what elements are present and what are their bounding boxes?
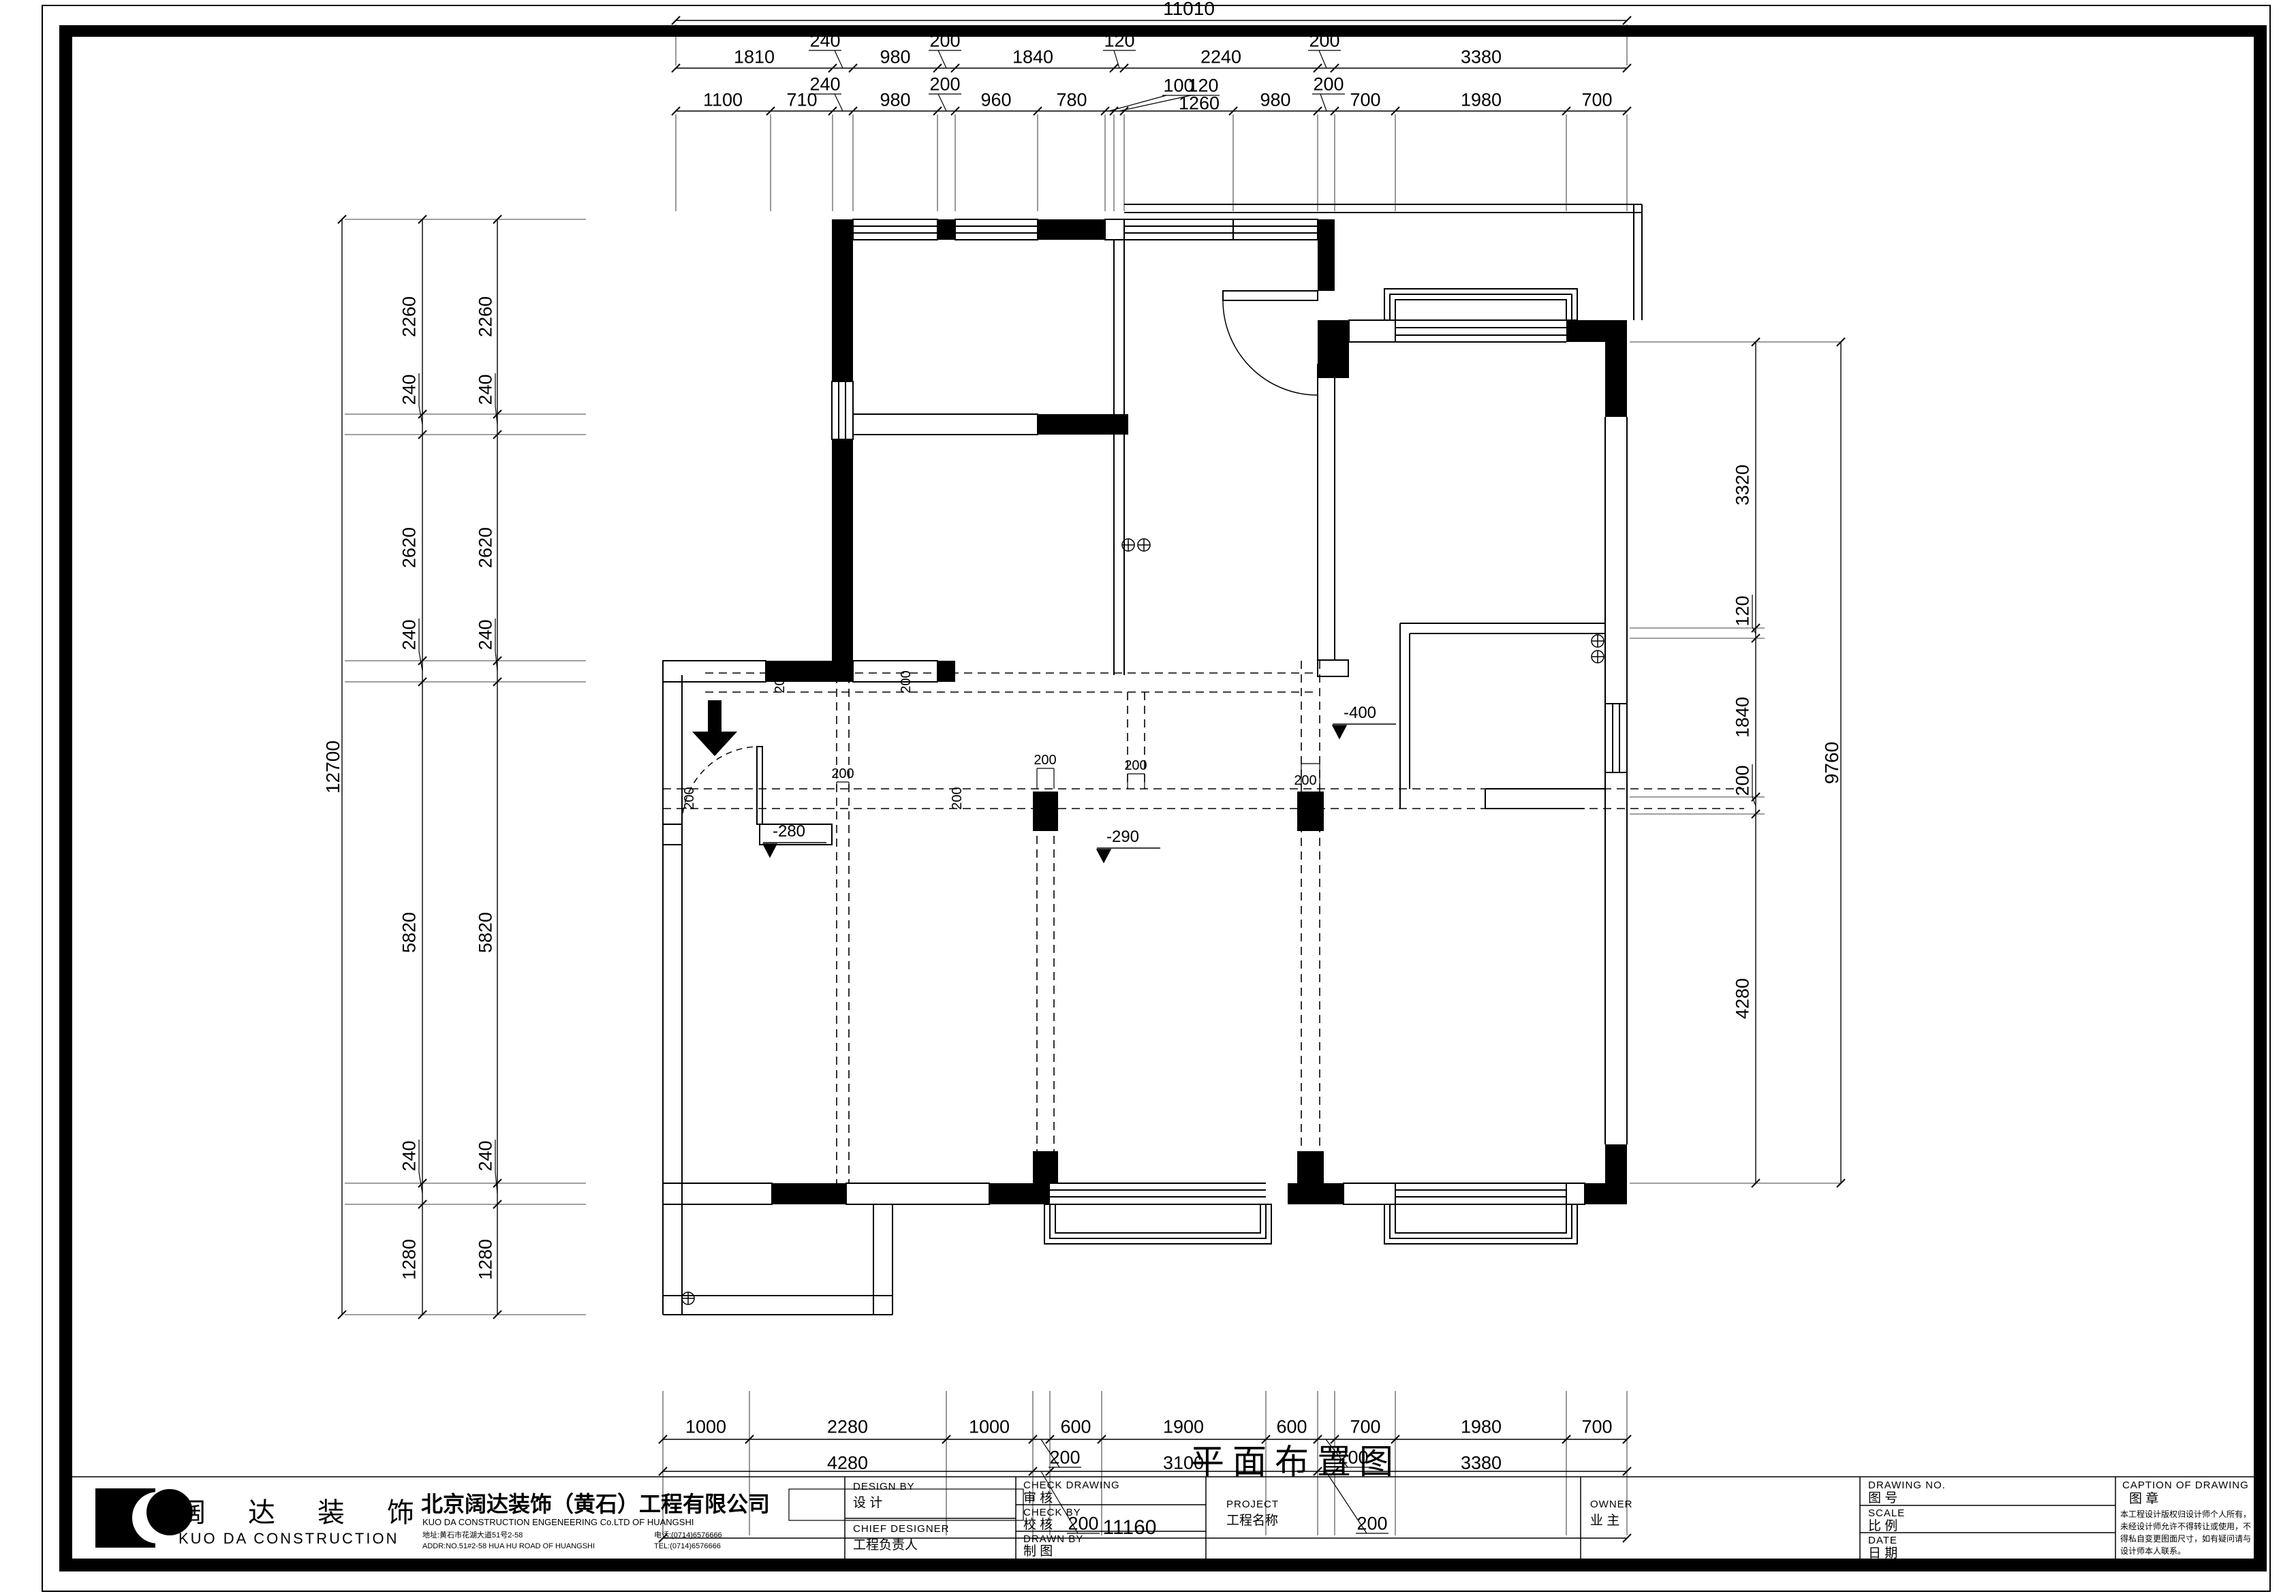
dim-top1: 200: [1309, 32, 1339, 50]
dim-top2: 980: [1260, 91, 1290, 110]
dim-right-overall: 9760: [1822, 742, 1842, 784]
dim-right: 120: [1734, 595, 1752, 626]
dimension-ticks: [338, 16, 1845, 1542]
dim-bot2: 3380: [1461, 1454, 1502, 1473]
dim-plan: 200: [773, 670, 787, 693]
dim-right: 3320: [1734, 465, 1752, 505]
brand-name-cn: 阔 达 装 饰: [179, 1497, 432, 1529]
dim-top2: 780: [1056, 91, 1087, 110]
dim-left-b: 2260: [477, 296, 495, 337]
dim-top1: 2240: [1200, 48, 1241, 67]
dim-bot1: 700: [1350, 1418, 1380, 1437]
dashed-layout-lines: [663, 661, 1744, 1183]
dim-top-overall: 11010: [1163, 0, 1215, 18]
dim-left-a: 240: [401, 619, 419, 650]
caption-of-drawing-label-cn: 图 章: [2129, 1492, 2158, 1507]
level-mark: -400: [1344, 705, 1376, 721]
sheet-frame-thick: [60, 26, 2266, 1571]
dim-bot1: 1000: [685, 1418, 726, 1437]
dimension-lines: [342, 20, 1841, 1538]
dim-top2: 980: [880, 91, 910, 110]
dim-bot2: 200: [1356, 1515, 1387, 1533]
level-mark: -290: [1106, 829, 1139, 845]
dim-plan: 200: [683, 787, 696, 809]
company-tel-cn: 电话:(0714)6576666: [654, 1531, 722, 1540]
copyright-note: 本工程设计版权归设计师个人所有，未经设计师允许不得转让或使用，不得私自变更图面尺…: [2120, 1508, 2251, 1557]
caption-of-drawing-label-en: CAPTION OF DRAWING: [2122, 1480, 2249, 1491]
company-address-cn: 地址:黄石市花湖大道51号2-58: [422, 1531, 523, 1540]
dim-left-a: 5820: [401, 912, 419, 953]
project-label-cn: 工程名称: [1226, 1514, 1278, 1529]
drawing-sheet: 1101018102409802001840120224020033801100…: [0, 0, 2296, 1596]
dim-plan: 200: [899, 670, 913, 693]
scale-label-cn: 比 例: [1868, 1519, 1897, 1534]
dim-bot2: 4280: [827, 1454, 868, 1473]
chief-designer-label-cn: 工程负责人: [853, 1538, 918, 1553]
dim-bot1: 700: [1581, 1418, 1612, 1437]
dim-left-a: 2260: [401, 296, 419, 337]
dim-bot1: 2280: [827, 1418, 868, 1437]
company-name-en: KUO DA CONSTRUCTION ENGENEERING Co.LTD O…: [422, 1518, 694, 1528]
entry-door-arc: [682, 747, 760, 824]
dim-right: 1840: [1734, 697, 1752, 738]
dim-left-a: 240: [401, 1140, 419, 1171]
dim-left-a: 1280: [401, 1239, 419, 1280]
check-drawing-label-cn: 审 核: [1023, 1491, 1053, 1506]
dim-plan: 200: [950, 787, 964, 809]
dim-plan: 200: [831, 767, 854, 781]
partition-walls: [663, 204, 1642, 1315]
dim-top2: 1260: [1179, 95, 1220, 113]
dim-plan: 200: [1034, 753, 1056, 767]
check-drawing-label-en: CHECK DRAWING: [1023, 1480, 1120, 1491]
level-mark: -280: [773, 824, 805, 840]
dim-left-b: 5820: [477, 912, 495, 953]
extension-lines: [345, 25, 1841, 1535]
drawing-no-label-en: DRAWING NO.: [1868, 1480, 1946, 1491]
company-tel-en: TEL:(0714)6576666: [654, 1542, 721, 1551]
design-by-label-cn: 设 计: [853, 1496, 882, 1511]
dim-top2: 1980: [1461, 91, 1502, 110]
dim-left-b: 1280: [477, 1239, 495, 1280]
dim-left-a: 240: [401, 374, 419, 405]
company-name-cn: 北京阔达装饰（黄石）工程有限公司: [421, 1492, 770, 1517]
interior-door-arc: [1223, 300, 1318, 395]
dim-left-b: 240: [477, 374, 495, 405]
check-by-label-cn: 校 核: [1023, 1518, 1053, 1533]
dim-top1: 980: [880, 48, 910, 67]
dim-left-a: 2620: [401, 527, 419, 568]
dim-top2: 960: [980, 91, 1011, 110]
design-by-label-en: DESIGN BY: [853, 1481, 915, 1492]
dim-left-b: 240: [477, 1140, 495, 1171]
dim-bot1: 1000: [969, 1418, 1010, 1437]
dim-bot1: 200: [1049, 1449, 1080, 1467]
page-title: 平面布置图: [1190, 1435, 1401, 1484]
dim-top1: 1810: [734, 48, 775, 67]
company-address-en: ADDR:NO.51#2-58 HUA HU ROAD OF HUANGSHI: [422, 1542, 595, 1551]
dim-bot1: 1900: [1163, 1418, 1204, 1437]
sheet-frame: [42, 5, 2270, 1591]
dim-bot-overall: 11160: [1103, 1518, 1157, 1538]
dim-left-b: 2620: [477, 527, 495, 568]
dim-plan: 200: [1294, 774, 1316, 787]
dim-top1: 3380: [1461, 48, 1502, 67]
project-label-en: PROJECT: [1226, 1499, 1279, 1510]
dim-right: 200: [1734, 765, 1752, 796]
entry-arrow-icon: [692, 700, 737, 756]
drawn-by-label-en: DRAWN BY: [1023, 1533, 1083, 1545]
dim-bot1: 600: [1060, 1418, 1091, 1437]
date-label-cn: 日 期: [1868, 1546, 1897, 1561]
brand-name-en: KUO DA CONSTRUCTION: [179, 1530, 399, 1547]
chief-designer-label-en: CHIEF DESIGNER: [853, 1523, 950, 1535]
drawn-by-label-cn: 制 图: [1023, 1544, 1053, 1559]
dim-top2: 700: [1350, 91, 1380, 110]
dim-bot1: 1980: [1461, 1418, 1502, 1437]
date-label-en: DATE: [1868, 1535, 1897, 1546]
door-arcs: [682, 291, 1318, 824]
dim-plan: 200: [1124, 759, 1147, 772]
dim-left-overall: 12700: [324, 740, 343, 794]
dim-top2: 240: [809, 76, 840, 94]
dim-bot1: 600: [1276, 1418, 1307, 1437]
dim-left-b: 240: [477, 619, 495, 650]
drawing-no-label-cn: 图 号: [1868, 1491, 1897, 1506]
dimension-leaders: [419, 50, 1756, 1533]
dim-right: 4280: [1734, 978, 1752, 1019]
scale-label-en: SCALE: [1868, 1507, 1905, 1519]
dim-top2: 120: [1188, 77, 1218, 95]
owner-label-en: OWNER: [1590, 1499, 1633, 1510]
dim-top2: 1100: [703, 91, 743, 110]
dim-top1: 120: [1104, 32, 1134, 50]
bearing-walls: [766, 219, 1627, 1204]
check-by-label-en: CHECK BY: [1023, 1507, 1081, 1518]
owner-label-cn: 业 主: [1590, 1514, 1619, 1529]
dim-top2: 700: [1581, 91, 1612, 110]
dim-top1: 1840: [1012, 48, 1053, 67]
dim-top1: 240: [809, 32, 840, 50]
dim-top2: 200: [1313, 76, 1344, 94]
interior-door-leaf: [1223, 291, 1318, 300]
plan-linework: [0, 0, 2296, 1596]
dim-top2: 200: [929, 76, 960, 94]
dim-top1: 200: [929, 32, 960, 50]
